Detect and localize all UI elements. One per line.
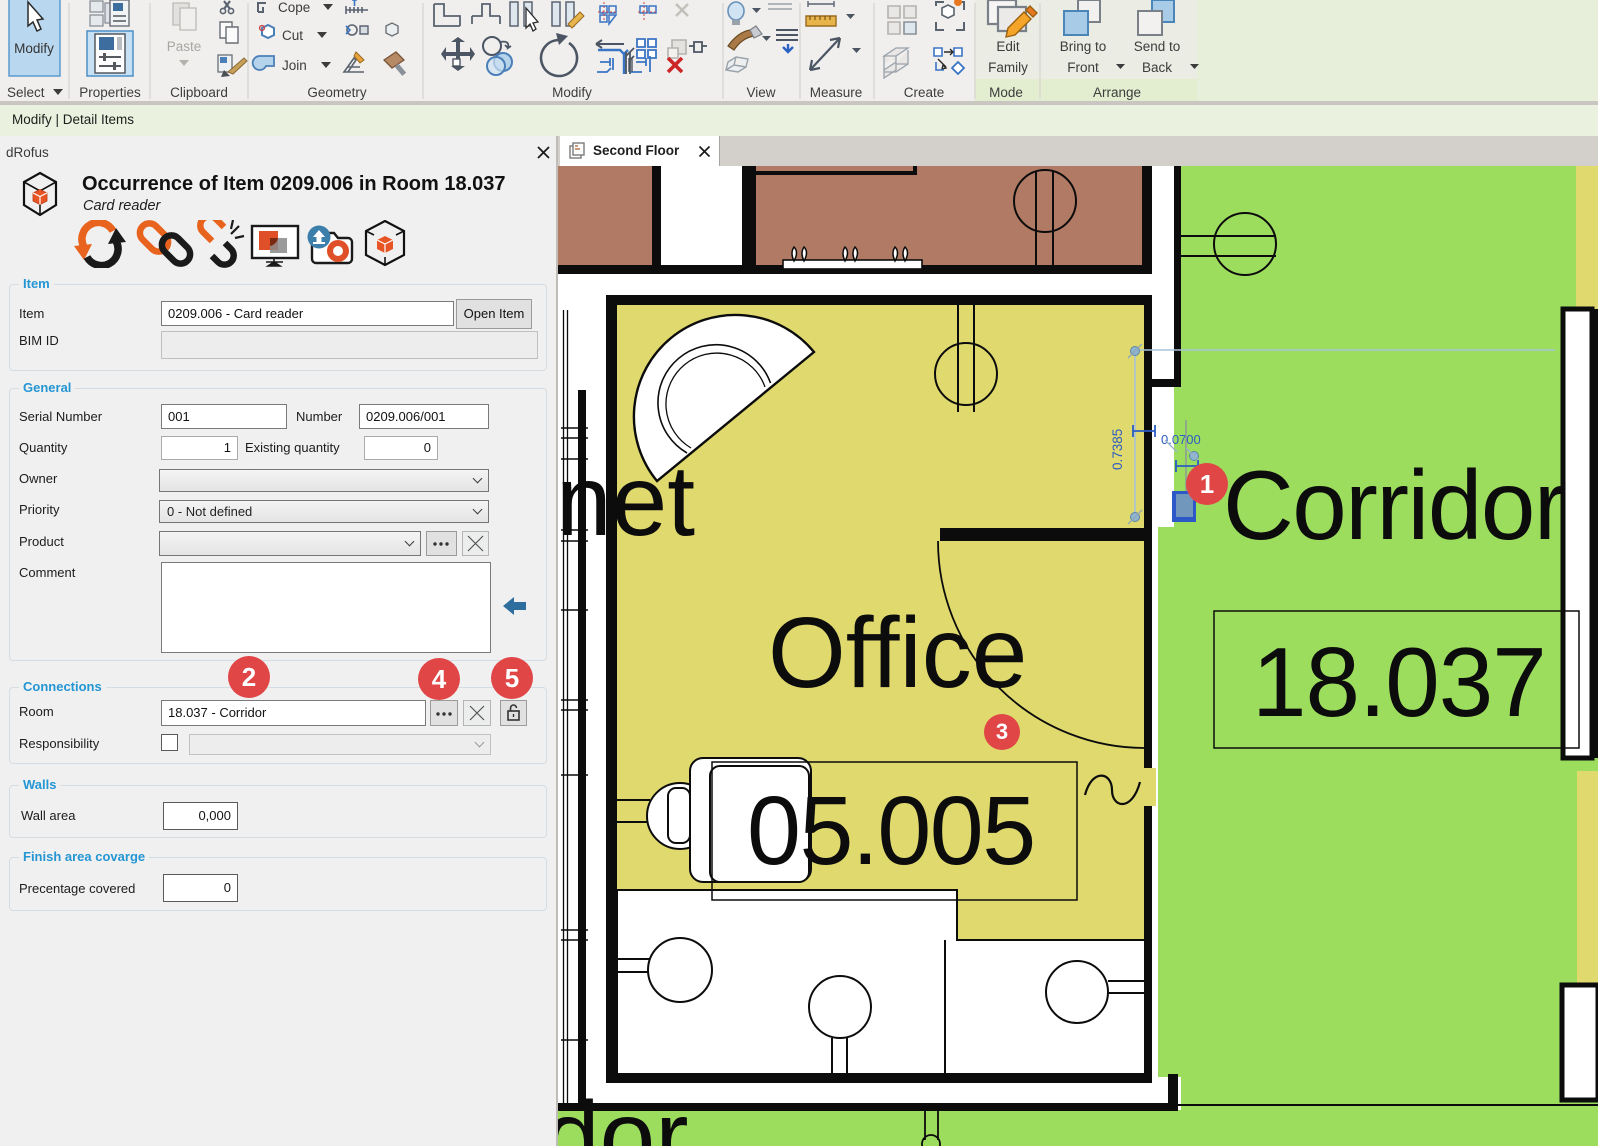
svg-text:Create: Create (904, 85, 945, 100)
svg-text:View: View (746, 85, 775, 100)
svg-text:Edit: Edit (996, 39, 1020, 54)
svg-text:Family: Family (988, 60, 1028, 75)
svg-text:Modify: Modify (14, 41, 54, 56)
svg-text:Select: Select (7, 85, 45, 100)
svg-text:Arrange: Arrange (1093, 85, 1141, 100)
svg-text:Geometry: Geometry (307, 85, 367, 100)
svg-text:Front: Front (1067, 60, 1099, 75)
svg-text:Clipboard: Clipboard (170, 85, 228, 100)
svg-text:05.005: 05.005 (747, 776, 1035, 885)
svg-text:Cope: Cope (278, 0, 310, 15)
svg-text:Send to: Send to (1134, 39, 1181, 54)
svg-text:0.7385: 0.7385 (1110, 429, 1125, 470)
svg-text:Modify: Modify (552, 85, 592, 100)
svg-text:Join: Join (282, 58, 307, 73)
svg-text:Back: Back (1142, 60, 1172, 75)
svg-text:Office: Office (768, 597, 1027, 709)
svg-text:18.037: 18.037 (1252, 627, 1546, 737)
svg-text:0.0700: 0.0700 (1161, 432, 1201, 447)
svg-text:dor: dor (558, 1081, 689, 1146)
svg-text:Mode: Mode (989, 85, 1023, 100)
svg-text:Properties: Properties (79, 85, 141, 100)
svg-text:Paste: Paste (167, 39, 202, 54)
svg-text:Corridor: Corridor (1223, 450, 1566, 560)
svg-text:Measure: Measure (810, 85, 863, 100)
svg-text:Cut: Cut (282, 28, 303, 43)
svg-text:Bring to: Bring to (1060, 39, 1107, 54)
